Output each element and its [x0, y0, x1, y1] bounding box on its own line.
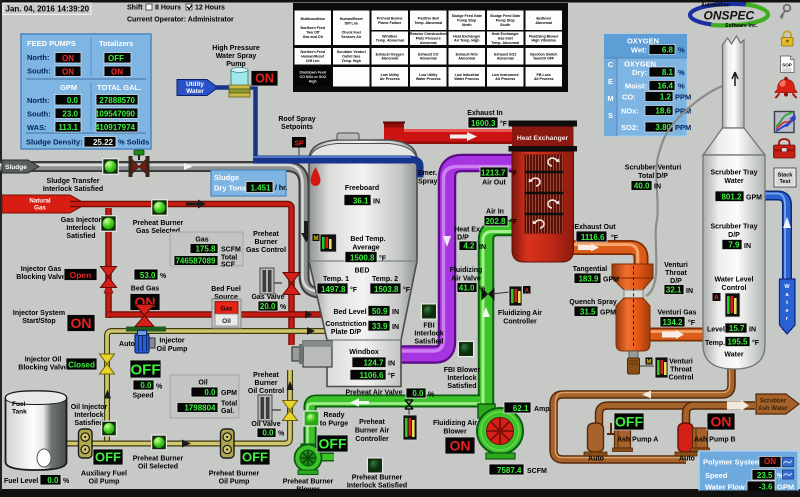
svg-text:M: M [607, 94, 613, 103]
svg-text:Fluidizing: Fluidizing [450, 267, 483, 274]
svg-text:Venturi Gas: Venturi Gas [658, 310, 697, 317]
svg-text:Injector System: Injector System [13, 310, 65, 317]
svg-text:Fluidizing Air: Fluidizing Air [433, 420, 477, 427]
svg-text:Throat: Throat [670, 367, 692, 374]
svg-text:°F: °F [510, 218, 518, 226]
svg-text:Two Off: Two Off [306, 31, 320, 35]
svg-text:Dry Tons: Dry Tons [214, 184, 246, 193]
svg-text:IN: IN [388, 361, 395, 368]
svg-text:A: A [714, 295, 719, 302]
svg-text:ONSPEC: ONSPEC [704, 9, 755, 23]
svg-text:27888570: 27888570 [99, 96, 135, 105]
svg-text:Dry:: Dry: [632, 68, 647, 77]
svg-text:Blocking Valve: Blocking Valve [18, 365, 68, 372]
svg-text:Preheat Burner: Preheat Burner [133, 456, 184, 463]
svg-text:1503.8: 1503.8 [374, 285, 399, 294]
svg-text:Water Spray: Water Spray [216, 53, 257, 60]
svg-text:Heat Exchanger: Heat Exchanger [517, 135, 569, 142]
svg-text:PPM: PPM [675, 123, 691, 132]
svg-text:Gas and Oil: Gas and Oil [303, 35, 323, 39]
svg-text:Utility: Utility [186, 81, 204, 88]
svg-text:-3.6: -3.6 [759, 482, 773, 491]
svg-text:Roof Spray: Roof Spray [278, 116, 315, 123]
svg-text:t: t [786, 300, 788, 306]
svg-text:Polymer System: Polymer System [703, 458, 762, 467]
svg-text:IN: IN [373, 199, 380, 206]
svg-text:Low Instrument: Low Instrument [492, 73, 520, 77]
svg-text:1497.8: 1497.8 [321, 285, 346, 294]
svg-text:NOx:: NOx: [621, 107, 639, 116]
svg-text:31.5: 31.5 [580, 307, 596, 316]
svg-text:Quench Spray: Quench Spray [569, 299, 617, 306]
svg-text:Freeboard: Freeboard [345, 185, 379, 192]
svg-text:D/P: D/P [728, 232, 740, 239]
svg-text:Ash Pump A: Ash Pump A [617, 437, 658, 444]
svg-text:Constriction: Constriction [325, 321, 366, 328]
svg-text:ON: ON [62, 54, 74, 63]
svg-text:Moist:: Moist: [625, 82, 647, 91]
svg-text:746587089: 746587089 [175, 256, 216, 265]
svg-text:SCFM: SCFM [221, 247, 241, 254]
svg-text:8 Hours: 8 Hours [155, 5, 181, 12]
svg-text:ON: ON [71, 315, 92, 331]
svg-text:CO NOx or SO2: CO NOx or SO2 [299, 75, 326, 79]
svg-text:Sludge: Sludge [214, 173, 239, 182]
svg-text:Control: Control [722, 285, 747, 292]
svg-text:1106.6: 1106.6 [359, 371, 384, 380]
svg-text:ON: ON [764, 457, 776, 466]
svg-text:Multicondition: Multicondition [300, 17, 325, 21]
svg-text:High Vibration: High Vibration [532, 39, 557, 43]
svg-text:FBI: FBI [423, 323, 434, 330]
svg-text:Burner: Burner [255, 239, 278, 246]
svg-text:SP: SP [294, 141, 304, 148]
svg-text:Venturi: Venturi [664, 262, 688, 269]
svg-text:OFF: OFF [319, 436, 347, 452]
svg-text:Fuel: Fuel [12, 401, 26, 408]
svg-text:OFF: OFF [131, 362, 161, 379]
svg-text:Exhaust Oxygen: Exhaust Oxygen [376, 52, 404, 56]
svg-text:Abnormal: Abnormal [458, 57, 475, 61]
svg-text:Scrubber Venturi: Scrubber Venturi [337, 50, 366, 54]
svg-text:23.5: 23.5 [757, 471, 773, 480]
svg-text:Bed Level: Bed Level [333, 309, 366, 316]
svg-text:% Solids: % Solids [118, 138, 149, 147]
svg-text:Windbox: Windbox [349, 349, 379, 356]
svg-text:0.0: 0.0 [47, 476, 59, 485]
svg-text:°F: °F [752, 339, 760, 347]
svg-text:32.1: 32.1 [666, 285, 682, 294]
svg-text:Temp. High: Temp. High [342, 59, 361, 63]
svg-text:Scrubber Tray: Scrubber Tray [710, 224, 757, 231]
svg-text:Northern Feed: Northern Feed [300, 26, 325, 30]
svg-text:Air Temp. High: Air Temp. High [454, 39, 479, 43]
svg-text:Oil Pump: Oil Pump [219, 479, 250, 486]
svg-text:FEED PUMPS: FEED PUMPS [27, 39, 76, 48]
svg-text:Abnormal: Abnormal [420, 57, 437, 61]
svg-text:°F: °F [388, 372, 396, 380]
svg-text:Sludge Transfer: Sludge Transfer [47, 178, 100, 185]
svg-text:E: E [608, 77, 613, 86]
svg-text:Water Flow: Water Flow [705, 483, 745, 492]
svg-text:%: % [678, 46, 685, 55]
svg-text:62.1: 62.1 [513, 404, 529, 413]
svg-text:124.7: 124.7 [363, 358, 384, 367]
svg-text:Venturi: Venturi [669, 359, 693, 366]
svg-text:Interlock Satisfied: Interlock Satisfied [347, 483, 407, 490]
svg-text:Start/Stop: Start/Stop [22, 318, 55, 325]
svg-text:Gas Valve: Gas Valve [251, 294, 284, 301]
svg-text:1500.8: 1500.8 [350, 253, 375, 262]
svg-text:SCFM: SCFM [527, 468, 547, 475]
svg-text:Average: Average [352, 245, 379, 252]
svg-text:Level: Level [707, 327, 725, 334]
svg-text:GPM: GPM [603, 277, 619, 284]
svg-text:Interlock: Interlock [447, 375, 476, 382]
svg-text:%: % [678, 68, 685, 77]
svg-text:ON: ON [450, 438, 471, 454]
svg-text:Satisfied: Satisfied [74, 420, 103, 427]
svg-text:Open: Open [70, 270, 92, 280]
svg-text:Air Process: Air Process [495, 77, 515, 81]
svg-text:53.0: 53.0 [140, 271, 156, 280]
svg-text:FBI Blower: FBI Blower [444, 367, 481, 374]
svg-text:Human/Reset: Human/Reset [301, 55, 325, 59]
svg-text:Water: Water [724, 178, 743, 185]
svg-text:0.0: 0.0 [262, 428, 274, 437]
svg-text:°F: °F [403, 286, 411, 294]
svg-text:Throat: Throat [665, 270, 687, 277]
svg-text:195.5: 195.5 [727, 337, 748, 346]
svg-text:OFF: OFF [242, 450, 268, 465]
svg-text:Exhaust In: Exhaust In [467, 110, 502, 117]
svg-text:0.0: 0.0 [412, 389, 424, 398]
svg-text:Gas Inlet: Gas Inlet [498, 37, 514, 41]
svg-text:ON: ON [255, 72, 274, 86]
svg-text:Speed: Speed [705, 471, 728, 480]
svg-text:Temp. Abnormal: Temp. Abnormal [376, 39, 404, 43]
svg-text:Auto: Auto [119, 341, 135, 348]
svg-text:Setpoints: Setpoints [281, 124, 313, 131]
svg-text:Spray: Spray [418, 179, 438, 186]
svg-text:Low Utility: Low Utility [381, 73, 399, 77]
svg-text:Jan. 04, 2016 14:39:20: Jan. 04, 2016 14:39:20 [6, 5, 90, 14]
svg-text:8.1: 8.1 [662, 68, 674, 77]
svg-text:Speed: Speed [132, 393, 153, 400]
svg-text:CO:: CO: [622, 93, 636, 102]
svg-text:Auxiliary Fuel: Auxiliary Fuel [81, 471, 127, 478]
svg-text:/ hr.: / hr. [275, 185, 288, 192]
svg-text:North:: North: [27, 53, 50, 62]
svg-text:GPM: GPM [777, 483, 794, 492]
svg-text:Sludge Feed Gate: Sludge Feed Gate [452, 14, 482, 18]
svg-text:ON: ON [111, 68, 123, 77]
svg-text:GPM: GPM [60, 83, 77, 92]
svg-text:BED: BED [355, 268, 370, 275]
svg-text:Oil: Oil [222, 318, 231, 325]
svg-text:Amp.: Amp. [534, 406, 552, 413]
svg-text:175.8: 175.8 [195, 244, 216, 253]
svg-text:North: North [462, 23, 472, 27]
svg-text:Heat Exchanger: Heat Exchanger [453, 34, 481, 38]
svg-text:50.9: 50.9 [372, 307, 388, 316]
svg-text:Water Process: Water Process [454, 77, 479, 81]
svg-text:6.8: 6.8 [662, 46, 674, 55]
svg-text:South:: South: [27, 67, 51, 76]
svg-text:PB Loss: PB Loss [537, 73, 551, 77]
svg-text:Preheat: Preheat [359, 419, 385, 426]
svg-text:OFF: OFF [615, 414, 643, 430]
svg-text:South: South [500, 23, 510, 27]
svg-text:Sludge Density:: Sludge Density: [26, 138, 83, 147]
svg-text:Gas: Gas [34, 205, 46, 212]
svg-text:Water: Water [724, 352, 743, 359]
svg-text:IN: IN [654, 184, 661, 191]
svg-text:134.2: 134.2 [662, 318, 683, 327]
svg-text:%: % [278, 431, 285, 438]
svg-text:1600.3: 1600.3 [471, 119, 496, 128]
svg-text:183.9: 183.9 [578, 274, 599, 283]
svg-text:WAS:: WAS: [27, 123, 47, 132]
svg-text:1213.7: 1213.7 [481, 168, 506, 177]
svg-text:Fluidizing Air: Fluidizing Air [498, 310, 542, 317]
svg-text:Injector: Injector [159, 338, 185, 345]
svg-text:Blocking Valve: Blocking Valve [16, 274, 66, 281]
svg-text:Shift: Shift [127, 5, 143, 12]
svg-text:Total: Total [221, 255, 237, 262]
svg-text:GPM: GPM [221, 390, 237, 397]
svg-text:Burner Air: Burner Air [355, 428, 390, 435]
svg-text:S: S [608, 111, 613, 120]
svg-text:%: % [678, 82, 685, 91]
svg-text:Water Process: Water Process [416, 77, 441, 81]
svg-text:Controller: Controller [503, 319, 537, 326]
svg-text:IN: IN [749, 327, 756, 334]
svg-text:Bed Gas: Bed Gas [131, 286, 160, 293]
svg-text:SOP: SOP [782, 63, 792, 68]
svg-text:PPM: PPM [675, 93, 691, 102]
svg-text:15.7: 15.7 [729, 324, 745, 333]
svg-text:Gas Injector: Gas Injector [61, 217, 102, 224]
svg-text:Blower: Blower [443, 429, 467, 436]
svg-text:%: % [428, 392, 435, 399]
svg-text:Scrubber Venturi: Scrubber Venturi [625, 165, 681, 172]
svg-text:Pump: Pump [226, 61, 245, 68]
svg-text:e: e [785, 308, 788, 314]
svg-text:All Process: All Process [534, 77, 554, 81]
svg-text:ON: ON [711, 414, 732, 430]
svg-text:Low Industrial: Low Industrial [455, 73, 479, 77]
svg-text:Bed Fuel: Bed Fuel [211, 286, 241, 293]
svg-text:%: % [160, 273, 167, 280]
svg-text:High Pressure: High Pressure [212, 45, 260, 52]
svg-text:C: C [608, 60, 614, 69]
svg-text:Positive Bell: Positive Bell [418, 16, 439, 20]
svg-text:Preheat: Preheat [253, 372, 279, 379]
svg-text:D/P: D/P [670, 278, 682, 285]
svg-text:Controller: Controller [355, 436, 389, 443]
svg-text:7.9: 7.9 [728, 240, 740, 249]
svg-text:IN: IN [392, 324, 399, 331]
svg-text:33.9: 33.9 [372, 322, 388, 331]
svg-text:16.4: 16.4 [657, 82, 673, 91]
svg-text:Auto: Auto [588, 456, 604, 463]
svg-text:Diff Lim: Diff Lim [345, 22, 358, 26]
svg-text:Low Utility: Low Utility [419, 73, 437, 77]
svg-text:°F: °F [611, 234, 619, 242]
svg-text:Water Level: Water Level [714, 277, 753, 284]
svg-text:Oil Injector: Oil Injector [71, 404, 108, 411]
svg-text:Preheat Burner: Preheat Burner [133, 220, 184, 227]
svg-text:Windbox: Windbox [382, 34, 397, 38]
svg-text:Satisfied: Satisfied [414, 339, 443, 346]
svg-text:°F: °F [688, 319, 696, 327]
svg-text:Interlock: Interlock [74, 412, 103, 419]
svg-text:Total: Total [221, 401, 237, 408]
svg-text:40.0: 40.0 [634, 181, 650, 190]
svg-text:Preheat Burner: Preheat Burner [283, 479, 334, 486]
svg-text:°F: °F [350, 286, 358, 294]
svg-text:Oil Selected: Oil Selected [138, 464, 178, 471]
svg-text:109547090: 109547090 [95, 110, 136, 119]
svg-text:Flame Failure: Flame Failure [378, 21, 401, 25]
svg-text:Oil Valve: Oil Valve [251, 421, 280, 428]
svg-text:OFF: OFF [108, 54, 124, 63]
svg-text:Test: Test [780, 179, 791, 185]
svg-text:Air Valve: Air Valve [451, 276, 481, 283]
svg-text:4.2: 4.2 [463, 241, 475, 250]
svg-text:Fuel Level: Fuel Level [4, 478, 38, 485]
svg-text:0.0: 0.0 [140, 381, 152, 390]
svg-text:Diff Lim: Diff Lim [306, 59, 319, 63]
svg-text:Temp. Abnormal: Temp. Abnormal [414, 21, 442, 25]
svg-text:Oil Pump: Oil Pump [157, 346, 188, 353]
svg-text:°F: °F [510, 170, 518, 178]
svg-text:Injector Oil: Injector Oil [25, 357, 62, 364]
svg-text:Auto: Auto [679, 456, 695, 463]
svg-text:IN: IN [479, 244, 486, 251]
svg-text:GPM: GPM [746, 195, 762, 202]
svg-text:113.1: 113.1 [58, 123, 78, 132]
svg-text:Gas Control: Gas Control [246, 247, 286, 254]
svg-text:Air Process: Air Process [380, 77, 400, 81]
svg-text:Preheat: Preheat [253, 231, 279, 238]
svg-text:Injector Gas: Injector Gas [21, 266, 62, 273]
svg-text:A: A [525, 288, 530, 294]
svg-text:Abnormal: Abnormal [381, 57, 398, 61]
svg-text:801.2: 801.2 [721, 192, 742, 201]
svg-text:%: % [280, 304, 287, 311]
svg-text:SO2:: SO2: [621, 123, 639, 132]
svg-text:Sludge Feed Gate: Sludge Feed Gate [490, 14, 520, 18]
svg-text:Temp. Abnormal: Temp. Abnormal [491, 41, 519, 45]
svg-text:Interlock Satisfied: Interlock Satisfied [43, 186, 103, 193]
svg-text:Abnormal: Abnormal [420, 41, 437, 45]
svg-text:Total D/P: Total D/P [638, 173, 668, 180]
svg-text:Air In: Air In [486, 209, 504, 216]
svg-text:20.0: 20.0 [260, 302, 276, 311]
svg-text:Burner: Burner [255, 380, 278, 387]
svg-text:Fluidizing Blower: Fluidizing Blower [529, 34, 559, 38]
svg-text:Gas: Gas [220, 306, 233, 313]
svg-text:Shutdown Feed: Shutdown Feed [299, 71, 326, 75]
svg-text:Northern Feed: Northern Feed [300, 50, 325, 54]
svg-text:Exhaust CO: Exhaust CO [418, 52, 439, 56]
svg-text:Exhaust SO2: Exhaust SO2 [494, 52, 516, 56]
svg-text:36.1: 36.1 [353, 196, 369, 205]
svg-text:Heat Exchanger: Heat Exchanger [492, 32, 520, 36]
svg-text:Temp. 2: Temp. 2 [372, 276, 398, 283]
svg-text:0.0: 0.0 [204, 388, 216, 397]
svg-text:Injection Switch: Injection Switch [530, 52, 557, 56]
svg-text:Oil Pump: Oil Pump [89, 479, 120, 486]
svg-text:Sludge: Sludge [5, 164, 27, 171]
svg-text:North:: North: [27, 96, 50, 105]
svg-text:202.8: 202.8 [485, 217, 506, 226]
svg-text:IN: IN [392, 309, 399, 316]
svg-text:°F: °F [379, 255, 387, 263]
svg-text:Air Out: Air Out [482, 180, 506, 187]
svg-text:to Purge: to Purge [320, 421, 348, 428]
svg-text:12 Hours: 12 Hours [195, 5, 225, 12]
svg-text:Tangential: Tangential [573, 266, 608, 273]
svg-text:GPM: GPM [600, 310, 616, 317]
svg-text:Closed: Closed [68, 361, 95, 370]
svg-text:Reactor Construction: Reactor Construction [410, 32, 447, 36]
svg-text:Interlock: Interlock [414, 331, 443, 338]
svg-text:Gas: Gas [195, 237, 208, 244]
svg-text:Oil: Oil [198, 380, 207, 387]
svg-text:Scrubber Tray: Scrubber Tray [710, 170, 757, 177]
svg-text:Satisfied: Satisfied [66, 233, 95, 240]
svg-text:SCF: SCF [221, 262, 236, 269]
svg-text:25.22: 25.22 [93, 138, 114, 147]
svg-text:Wet:: Wet: [631, 46, 647, 55]
svg-text:41.0: 41.0 [459, 283, 475, 292]
svg-text:Human/Reset: Human/Reset [340, 17, 364, 21]
svg-text:1116.6: 1116.6 [581, 233, 605, 242]
svg-text:Outlet Gas: Outlet Gas [342, 55, 360, 59]
svg-text:W: W [784, 284, 790, 290]
svg-text:Oil Control: Oil Control [248, 388, 284, 395]
svg-text:Bed Temp.: Bed Temp. [350, 236, 385, 243]
svg-text:7587.4: 7587.4 [497, 466, 522, 475]
svg-text:Temp. 1: Temp. 1 [323, 276, 349, 283]
svg-text:Ready: Ready [323, 412, 344, 419]
svg-text:Exhaust Out: Exhaust Out [574, 224, 616, 231]
svg-text:OFF: OFF [95, 450, 121, 465]
svg-text:Emer.: Emer. [418, 170, 437, 177]
svg-text:Gas/Oil OFF: Gas/Oil OFF [533, 57, 555, 61]
svg-text:Plate Pressure: Plate Pressure [416, 37, 441, 41]
svg-text:%: % [63, 478, 70, 485]
svg-text:Satisfied: Satisfied [447, 383, 476, 390]
svg-text:410917974: 410917974 [95, 123, 136, 132]
svg-text:Software Inc.: Software Inc. [725, 23, 758, 29]
svg-text:Pump Stop: Pump Stop [457, 19, 477, 23]
svg-text:IN: IN [744, 243, 751, 250]
svg-text:1.2: 1.2 [660, 93, 672, 102]
svg-text:0.0: 0.0 [67, 96, 79, 105]
svg-text:Current Operator: Administrato: Current Operator: Administrator [127, 17, 234, 24]
svg-text:Interlock: Interlock [66, 225, 95, 232]
svg-text:Ash Pump B: Ash Pump B [694, 437, 736, 444]
svg-text:ON: ON [62, 68, 74, 77]
svg-text:Natural: Natural [29, 198, 51, 205]
svg-text:Abnormal: Abnormal [535, 21, 552, 25]
svg-text:Heat Ex.: Heat Ex. [454, 227, 482, 234]
svg-text:IN: IN [686, 288, 693, 295]
